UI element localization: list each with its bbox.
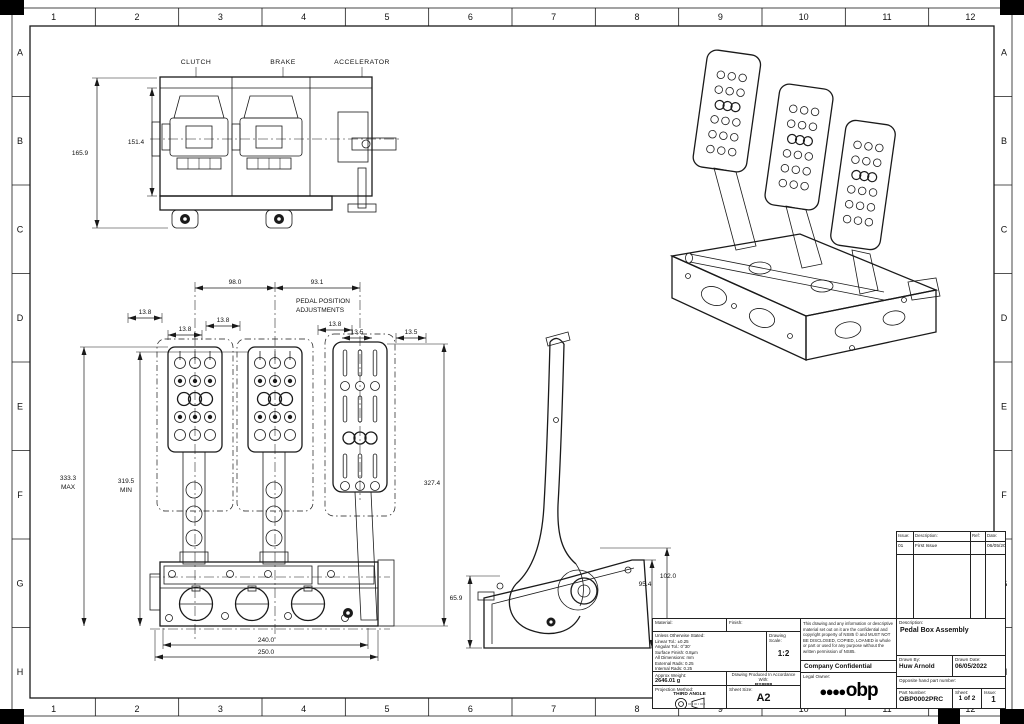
grid-reference-band: 112233445566778899101011111212AABBCCDDEE… — [12, 8, 1012, 716]
top-view-label-brake: BRAKE — [270, 59, 296, 66]
standard-cell: Drawing Produced In Accordance With: BS8… — [726, 671, 801, 686]
pad-hole — [730, 133, 739, 142]
pad-hole — [809, 122, 818, 131]
grid-col-label-top: 5 — [384, 12, 389, 22]
front-dim-min-suffix: MIN — [120, 487, 132, 494]
pad-hole — [738, 74, 747, 83]
front-dim-adj2: 13.8 — [217, 317, 230, 324]
grid-row-label-left: F — [17, 490, 23, 500]
drawing-scale-label: Drawing Scale: — [767, 632, 800, 644]
description-value: Pedal Box Assembly — [897, 625, 1005, 636]
obp-logo-dots: ●●●● — [819, 684, 844, 699]
issue-value: 1 — [982, 695, 1005, 704]
grid-col-label-top: 11 — [882, 12, 891, 22]
grid-col-label-top: 9 — [718, 12, 723, 22]
pad-hole — [873, 158, 882, 167]
pad-hole — [714, 85, 723, 94]
pad-hole — [783, 149, 792, 158]
grid-col-label-bottom: 3 — [218, 704, 223, 714]
iso-pedal-accelerator — [829, 119, 896, 251]
front-dim-adj3: 13.8 — [179, 326, 192, 333]
pad-slot — [343, 396, 347, 422]
pad-hole — [710, 115, 719, 124]
pad-hole-center — [193, 379, 197, 383]
revision-row-description: First Issue — [914, 542, 970, 555]
pad-hole — [708, 130, 717, 139]
grid-col-label-bottom: 7 — [551, 704, 556, 714]
pad-hole-center — [258, 379, 262, 383]
pad-hole-center — [273, 415, 277, 419]
pad-slot — [343, 454, 347, 478]
drawing-scale-cell: Drawing Scale: 1:2 — [766, 631, 801, 672]
drawn-date-value: 06/05/2022 — [953, 662, 1005, 671]
pad-hole — [205, 430, 216, 441]
front-dim-base-outer: 250.0 — [258, 649, 275, 656]
engineering-drawing-sheet: { "border": { "columns": ["1","2","3","4… — [0, 0, 1024, 724]
pad-hole — [856, 202, 865, 211]
pad-hole-center — [208, 379, 212, 383]
revision-header-date: Date: — [986, 532, 1005, 542]
sheet-size-cell: Sheet Size: A2 — [726, 685, 801, 709]
side-view: 65.9 95.4 102.0 — [450, 332, 677, 648]
grid-col-label-bottom: 5 — [384, 704, 389, 714]
pad-hole — [853, 141, 862, 150]
pad-hole — [869, 188, 878, 197]
part-number-value: OBP0002PRC — [897, 695, 952, 704]
sheet-value: 1 of 2 — [953, 695, 981, 702]
pad-hole — [728, 148, 737, 157]
grid-col-label-bottom: 1 — [51, 704, 56, 714]
pad-hole-center — [208, 415, 212, 419]
grid-col-label-top: 3 — [218, 12, 223, 22]
pad-hole — [341, 482, 350, 491]
pad-hole — [717, 146, 726, 155]
grid-col-label-top: 4 — [301, 12, 306, 22]
revision-col-description: Description: First Issue — [914, 532, 971, 618]
part-number-cell: Part Number: OBP0002PRC — [896, 688, 953, 709]
projection-cell: Projection Method: THIRD ANGLE — [652, 685, 727, 709]
top-view-label-accelerator: ACCELERATOR — [334, 59, 390, 66]
pad-hole — [800, 182, 809, 191]
obp-logo-text: obp — [846, 680, 878, 702]
iso-pedal-clutch — [692, 49, 762, 173]
front-dim-base-inner: 240.0 — [258, 637, 275, 644]
pad-hole — [851, 155, 860, 164]
pad-hole — [255, 430, 266, 441]
grid-row-label-left: E — [17, 401, 23, 411]
confidentiality-text: This drawing and any information or desc… — [801, 619, 896, 656]
front-dim-98: 98.0 — [229, 279, 242, 286]
pad-logo-circle — [365, 432, 377, 444]
grid-col-label-bottom: 8 — [634, 704, 639, 714]
drawn-date-cell: Drawn Date: 06/05/2022 — [952, 655, 1006, 677]
pad-slot — [373, 350, 377, 376]
grid-col-label-bottom: 6 — [468, 704, 473, 714]
pad-hole — [719, 131, 728, 140]
pad-hole — [811, 108, 820, 117]
drawn-by-value: Huw Arnold — [897, 662, 952, 671]
front-dim-min: 319.5 — [118, 478, 135, 485]
revision-row-ref — [971, 542, 985, 555]
pad-hole-center — [178, 379, 182, 383]
pad-hole — [717, 71, 726, 80]
approx-weight-cell: Approx Weight: 2646.01 g — [652, 671, 727, 686]
pad-slot — [373, 396, 377, 422]
grid-col-label-bottom: 2 — [134, 704, 139, 714]
description-cell: Description: Pedal Box Assembly — [896, 618, 1006, 656]
pad-hole — [794, 151, 803, 160]
drawing-scale-value: 1:2 — [767, 649, 800, 658]
pad-hole — [175, 430, 186, 441]
pad-hole — [341, 382, 350, 391]
grid-col-label-bottom: 4 — [301, 704, 306, 714]
pad-hole-center — [273, 379, 277, 383]
pad-hole — [862, 157, 871, 166]
pad-hole — [371, 482, 380, 491]
finish-cell: Finish: — [726, 618, 801, 632]
pad-hole — [847, 185, 856, 194]
grid-col-label-top: 7 — [551, 12, 556, 22]
grid-col-label-top: 10 — [799, 12, 809, 22]
grid-row-label-left: G — [16, 578, 23, 588]
front-dim-93: 93.1 — [311, 279, 324, 286]
pad-hole — [875, 144, 884, 153]
grid-col-label-top: 6 — [468, 12, 473, 22]
pad-hole — [792, 165, 801, 174]
grid-row-label-right: B — [1001, 136, 1007, 146]
grid-row-label-right: A — [1001, 47, 1007, 57]
pad-hole — [854, 216, 863, 225]
pad-hole — [789, 105, 798, 114]
pad-hole — [867, 203, 876, 212]
pad-hole — [789, 180, 798, 189]
company-confidential-text: Company Confidential — [801, 661, 896, 672]
front-dim-max-suffix: MAX — [61, 484, 76, 491]
pad-hole-center — [258, 415, 262, 419]
top-dim-overall: 165.9 — [72, 150, 89, 157]
third-angle-projection-icon — [673, 697, 707, 709]
pad-hole — [787, 119, 796, 128]
tolerance-notes-cell: Unless Otherwise Stated: Linear Tol.: ±0… — [652, 631, 767, 672]
pad-hole — [858, 187, 867, 196]
front-dim-adj4: 13.8 — [329, 321, 342, 328]
sheet-cell: Sheet: 1 of 2 — [952, 688, 982, 709]
grid-row-label-left: C — [17, 224, 24, 234]
revision-row-issue: 01 — [897, 542, 913, 555]
side-dim-bracket: 65.9 — [450, 595, 463, 602]
pad-hole — [721, 117, 730, 126]
pad-hole — [864, 142, 873, 151]
grid-col-label-top: 12 — [965, 12, 975, 22]
revision-header-ref: Ref: — [971, 532, 985, 542]
isometric-view — [672, 49, 940, 360]
front-dim-max: 333.3 — [60, 475, 77, 482]
sheet-border — [12, 8, 1012, 716]
side-dim-overall: 102.0 — [660, 573, 677, 580]
pad-hole — [781, 164, 790, 173]
grid-row-label-right: E — [1001, 401, 1007, 411]
pad-hole — [845, 200, 854, 209]
confidentiality-cell: This drawing and any information or desc… — [800, 618, 897, 661]
grid-row-label-right: C — [1001, 224, 1008, 234]
front-dim-adj1: 13.8 — [139, 309, 152, 316]
front-view: 98.0 93.1 PEDAL POSITION ADJUSTMENTS 13.… — [60, 279, 448, 661]
grid-row-label-left: A — [17, 47, 23, 57]
issue-cell: Issue: 1 — [981, 688, 1006, 709]
pad-hole — [732, 118, 741, 127]
front-note-line2: ADJUSTMENTS — [296, 307, 345, 314]
pad-hole — [736, 88, 745, 97]
revision-col-date: Date: 06/05/2022 — [986, 532, 1005, 618]
obp-logo: ●●●●obp — [801, 679, 896, 703]
approx-weight-value: 2646.01 g — [653, 678, 726, 684]
finish-label: Finish: — [727, 619, 800, 625]
front-dim-adj6: 13.5 — [405, 329, 418, 336]
front-note-line1: PEDAL POSITION — [296, 298, 350, 305]
grid-row-label-right: F — [1001, 490, 1007, 500]
pad-hole — [285, 430, 296, 441]
material-label: Material: — [653, 619, 726, 625]
pad-hole-center — [288, 415, 292, 419]
drawing-canvas: 112233445566778899101011111212AABBCCDDEE… — [0, 0, 1024, 724]
top-view-label-clutch: CLUTCH — [181, 59, 212, 66]
grid-col-label-top: 1 — [51, 12, 56, 22]
revision-col-issue: Issue: 01 — [897, 532, 914, 618]
side-dim-mid: 95.4 — [639, 581, 652, 588]
pad-hole — [804, 152, 813, 161]
grid-col-label-top: 8 — [634, 12, 639, 22]
iso-pedal-brake — [764, 83, 834, 211]
pad-hole-center — [288, 379, 292, 383]
pad-hole — [800, 106, 809, 115]
pad-hole — [725, 87, 734, 96]
pad-hole-center — [193, 415, 197, 419]
pad-hole — [802, 167, 811, 176]
pad-hole — [843, 215, 852, 224]
pad-hole — [865, 218, 874, 227]
revision-col-ref: Ref: — [971, 532, 986, 618]
pad-hole-center — [178, 415, 182, 419]
pad-slot — [373, 454, 377, 478]
revision-table: Issue: 01 Description: First Issue Ref: … — [896, 531, 1006, 619]
grid-col-label-top: 2 — [134, 12, 139, 22]
revision-header-issue: Issue: — [897, 532, 913, 542]
standard-label: Drawing Produced In Accordance With: — [727, 672, 800, 683]
front-dim-accel-height: 327.4 — [424, 480, 441, 487]
legal-owner-cell: Legal Owner: ●●●●obp — [800, 672, 897, 709]
pad-hole — [371, 382, 380, 391]
grid-row-label-right: D — [1001, 313, 1008, 323]
pad-slot — [343, 350, 347, 376]
front-dim-adj5: 13.5 — [351, 329, 364, 336]
sheet-size-value: A2 — [727, 692, 800, 704]
revision-header-description: Description: — [914, 532, 970, 542]
material-cell: Material: — [652, 618, 727, 632]
opposite-hand-label: Opposite hand part number: — [897, 677, 1005, 683]
grid-row-label-left: H — [17, 667, 24, 677]
revision-row-date: 06/05/2022 — [986, 542, 1005, 555]
pad-hole — [727, 72, 736, 81]
drawn-by-cell: Drawn By: Huw Arnold — [896, 655, 953, 677]
pad-hole — [706, 145, 715, 154]
pad-logo-circle — [343, 432, 355, 444]
grid-row-label-left: B — [17, 136, 23, 146]
top-dim-inner: 151.4 — [128, 139, 145, 146]
top-view: CLUTCH BRAKE ACCELERATOR — [72, 59, 400, 228]
grid-row-label-left: D — [17, 313, 24, 323]
pad-hole — [798, 121, 807, 130]
pad-hole — [779, 179, 788, 188]
